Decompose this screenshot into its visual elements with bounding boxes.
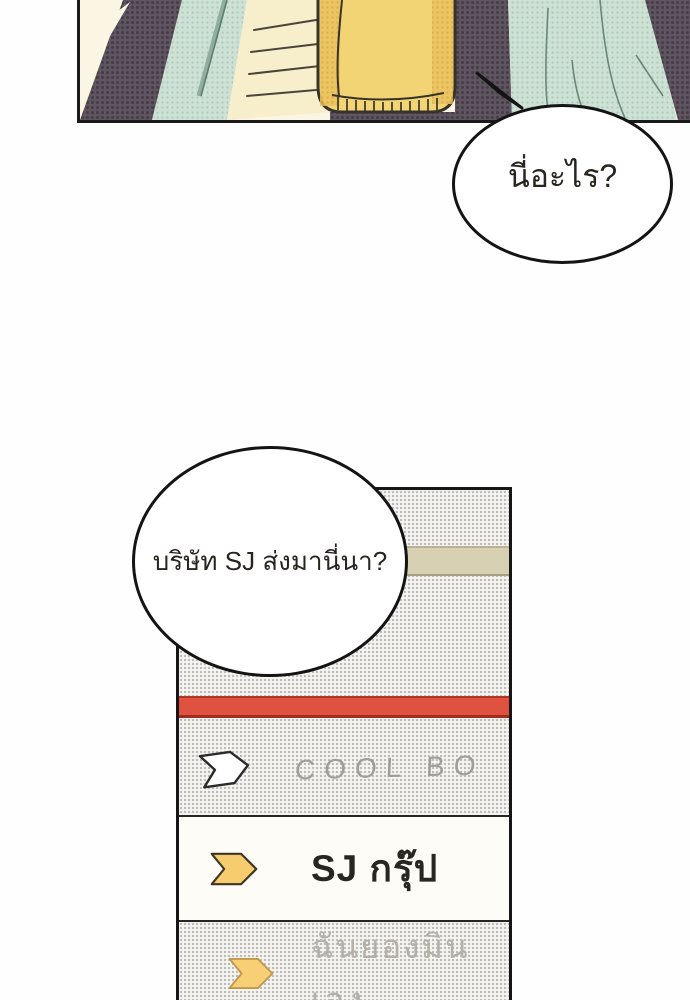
chevron-right-icon [209,851,259,887]
speech-bubble-1-text: นี่อะไร? [508,151,617,202]
chevron-right-icon [197,746,254,790]
character-illustration [80,0,690,120]
speech-bubble-1-tail [448,56,528,116]
box-row-handwritten: COOL BO [179,738,509,798]
box-handwritten-text: COOL BO [294,749,485,786]
speech-bubble-2: บริษัท SJ ส่งมานี่นา? [132,446,408,677]
box-row-faded: ฉันยองมินเอง [179,942,509,1000]
comic-page: นี่อะไร? COOL BO SJ กรุ๊ป [0,0,690,1000]
chevron-right-icon [227,956,275,991]
box-faded-text: ฉันยองมินเอง [311,920,509,1000]
comic-panel-top [77,0,690,123]
box-red-stripe [179,696,509,718]
box-label-text: SJ กรุ๊ป [311,839,438,898]
speech-bubble-2-text: บริษัท SJ ส่งมานี่นา? [153,541,387,582]
cup-shading-left [320,0,340,106]
speech-bubble-1: นี่อะไร? [452,104,673,264]
box-label-band: SJ กรุ๊ป [179,815,509,922]
